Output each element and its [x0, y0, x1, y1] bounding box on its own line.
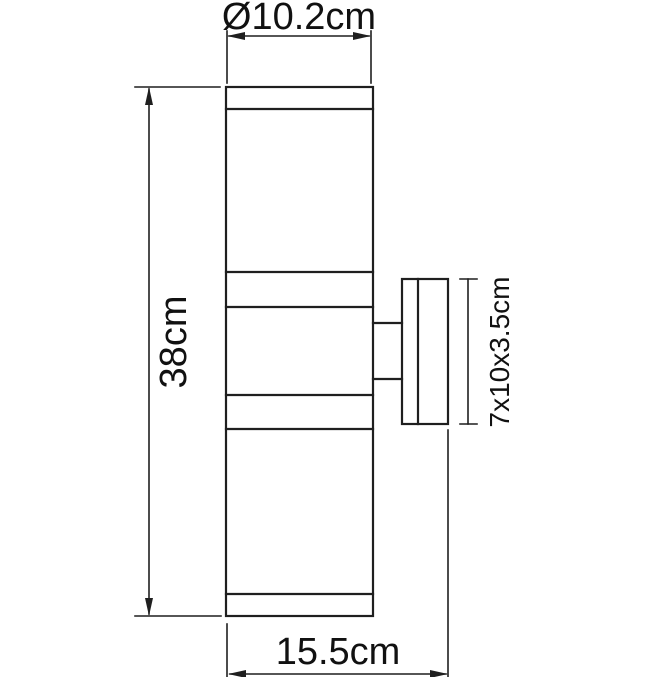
dimension-width-depth: 15.5cm: [227, 430, 448, 677]
wall-mount-plate: [402, 279, 448, 424]
dimension-drawing: Ø10.2cm 38cm 7x10x3.5cm 15.5cm: [0, 0, 650, 677]
mount-plate-label: 7x10x3.5cm: [484, 277, 515, 428]
lamp-body-outline: [226, 87, 373, 616]
lamp-fixture: [226, 87, 448, 616]
dimension-mount-plate: 7x10x3.5cm: [460, 277, 515, 428]
dim-arrow-down-icon: [145, 598, 153, 616]
technical-drawing-page: Ø10.2cm 38cm 7x10x3.5cm 15.5cm: [0, 0, 650, 677]
dimension-diameter: Ø10.2cm: [222, 0, 376, 83]
dimension-height: 38cm: [135, 87, 221, 616]
height-label: 38cm: [153, 296, 195, 389]
dim-arrow-up-icon: [145, 87, 153, 105]
dim-arrow-left-icon: [228, 670, 246, 677]
dim-arrow-right-icon: [430, 670, 448, 677]
width-depth-label: 15.5cm: [276, 631, 401, 673]
diameter-label: Ø10.2cm: [222, 0, 376, 38]
